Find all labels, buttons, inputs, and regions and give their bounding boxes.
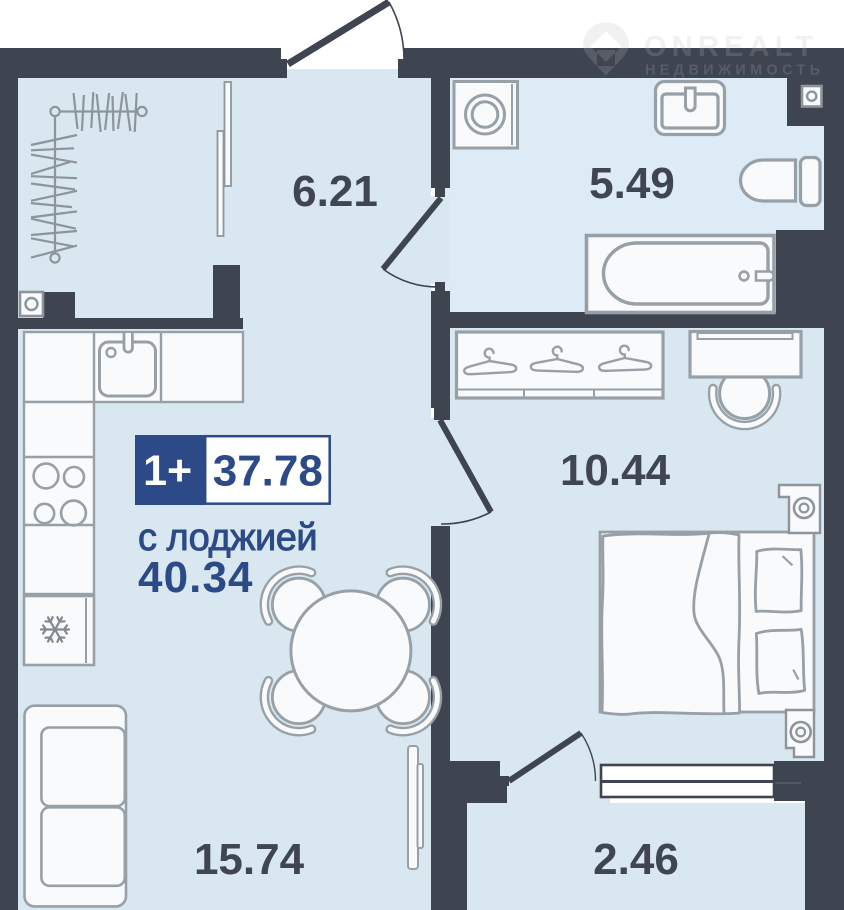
svg-text:2.46: 2.46 [593, 835, 679, 884]
svg-text:5.49: 5.49 [589, 159, 675, 208]
svg-text:1+: 1+ [143, 447, 192, 495]
svg-text:15.74: 15.74 [194, 835, 305, 884]
svg-text:37.78: 37.78 [213, 447, 323, 496]
svg-text:40.34: 40.34 [138, 553, 254, 602]
svg-text:6.21: 6.21 [292, 167, 378, 216]
svg-text:10.44: 10.44 [560, 446, 671, 495]
